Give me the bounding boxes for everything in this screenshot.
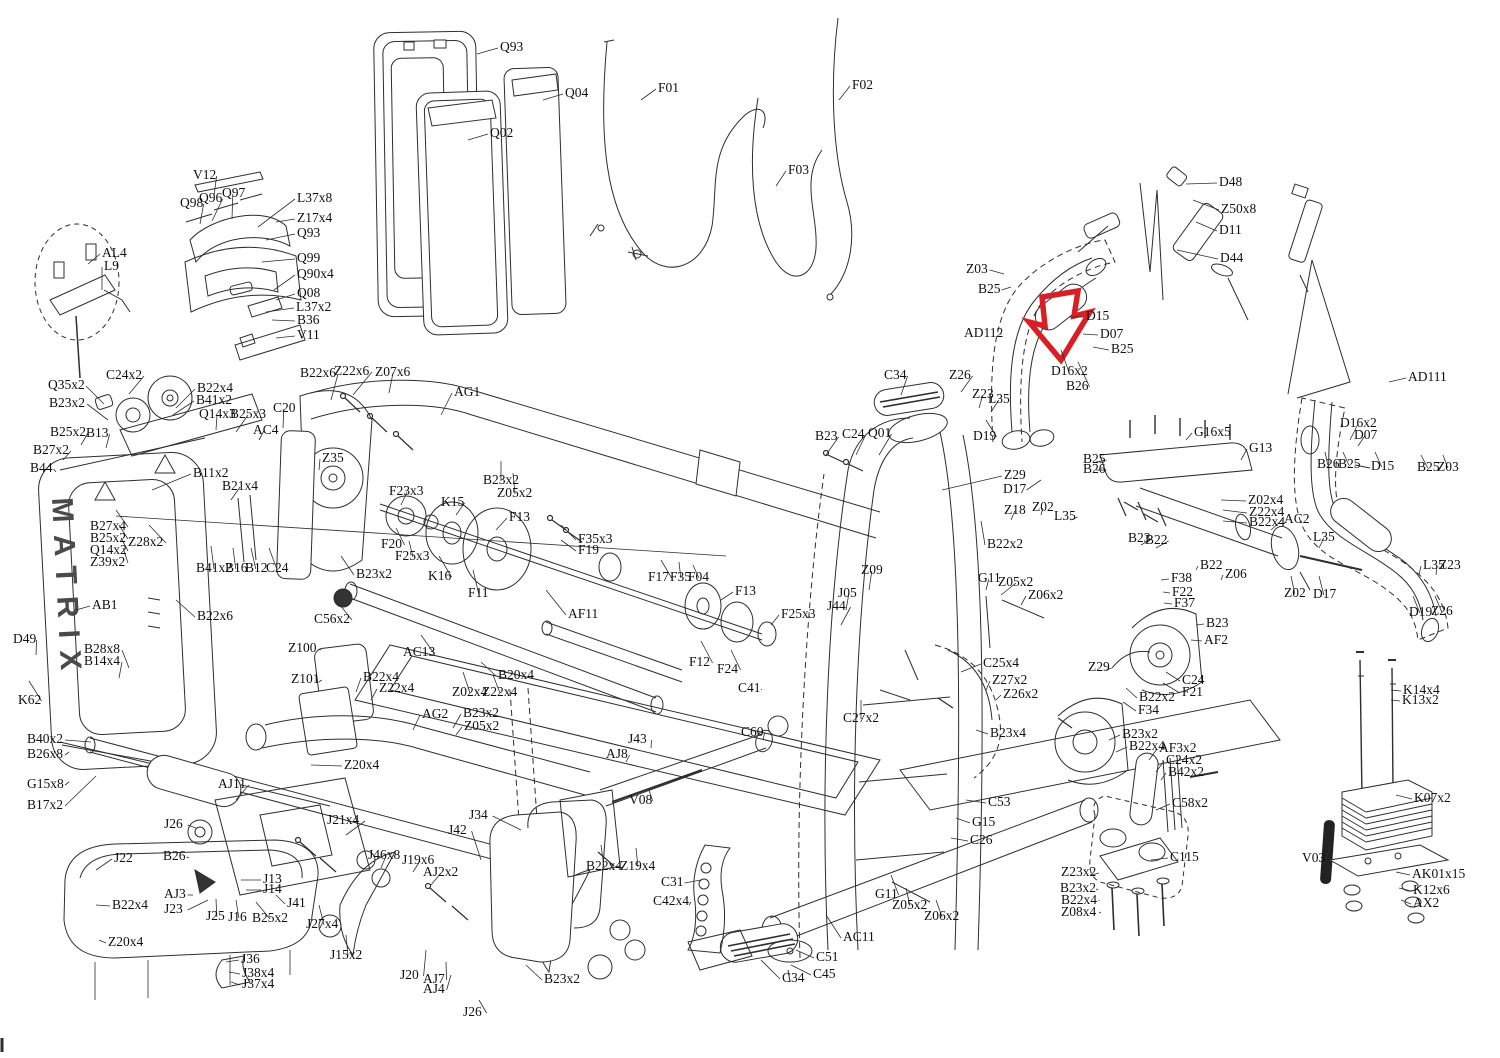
damper-cylinders bbox=[1140, 166, 1323, 320]
shroud-panels bbox=[374, 31, 567, 335]
diagram-line-art: MATRIX bbox=[0, 0, 1500, 1058]
cables bbox=[590, 18, 852, 300]
console-assembly bbox=[35, 172, 305, 378]
handlebar-left bbox=[992, 211, 1122, 451]
base-frame bbox=[60, 645, 1280, 867]
drive-assembly bbox=[116, 380, 880, 755]
weight-stack bbox=[1320, 652, 1448, 923]
brand-text: MATRIX bbox=[45, 497, 88, 683]
parts-diagram-canvas: MATRIX V12Q98Q96Q97L37x8Z17x4Q93Q99Q90x4… bbox=[0, 0, 1500, 1058]
rear-cover-assembly bbox=[1100, 415, 1362, 572]
pulley-assemblies bbox=[688, 608, 1218, 970]
main-frame bbox=[510, 381, 1098, 982]
handlebar-right bbox=[1288, 260, 1448, 644]
